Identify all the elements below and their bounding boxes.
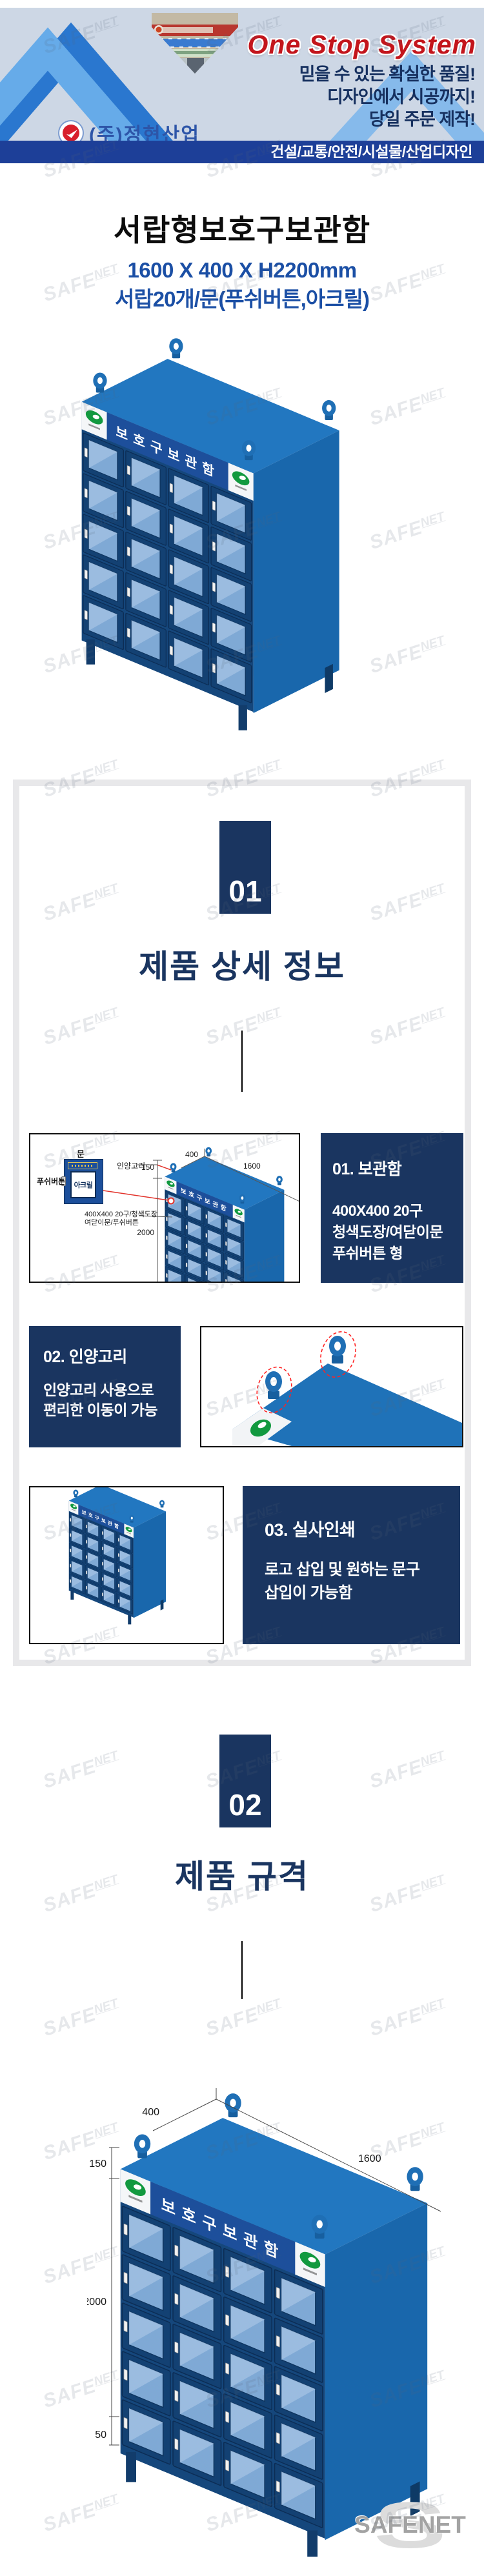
safenet-watermark: SAFENET <box>367 385 449 430</box>
divider-line <box>241 1031 243 1092</box>
card-line: 청색도장/여닫이문 <box>332 1222 443 1243</box>
spec-drawing: 400 1600 150 2000 50 <box>87 2031 449 2557</box>
dim-150-label: 150 <box>137 1163 154 1172</box>
card-line: 400X400 20구 <box>332 1200 443 1222</box>
card-line: 로고 삽입 및 원하는 문구 <box>265 1558 419 1582</box>
card-line: 푸쉬버튼 형 <box>332 1243 443 1264</box>
company-name: (주)정현산업 <box>89 119 200 141</box>
product-title: 서랍형보호구보관함 <box>0 205 484 250</box>
detail-diagram-box: 아크릴 문 푸쉬버튼 인양고리 150 2000 400 1600 400X40… <box>29 1133 300 1283</box>
door-illustration: 아크릴 <box>64 1159 103 1204</box>
drawer-note-line: 여닫이문/푸쉬버튼 <box>85 1219 139 1227</box>
company-emblem-icon <box>58 120 84 141</box>
card-body: 인양고리 사용으로 편리한 이동이 가능 <box>43 1380 157 1420</box>
product-image <box>65 333 368 745</box>
tagline: 믿을 수 있는 확실한 품질! <box>299 63 475 86</box>
banner-headline: One Stop System <box>248 30 476 60</box>
section1-title: 제품 상세 정보 <box>0 941 484 987</box>
door-sign <box>68 1162 97 1169</box>
card-title: 02. 인양고리 <box>43 1344 127 1367</box>
company-logo: (주)정현산업 <box>58 119 200 141</box>
section1-number: 01 <box>219 821 271 914</box>
dim-2000-label: 2000 <box>134 1228 154 1237</box>
header-banner: One Stop System 믿을 수 있는 확실한 품질! 디자인에서 시공… <box>0 8 484 141</box>
section2-number: 02 <box>219 1735 271 1827</box>
spec-dim-50: 50 <box>95 2430 106 2440</box>
card-line: 편리한 이동이 가능 <box>43 1400 157 1420</box>
tagline: 당일 주문 제작! <box>299 108 475 131</box>
info-card-1: 01. 보관함 400X400 20구 청색도장/여닫이문 푸쉬버튼 형 <box>321 1133 463 1283</box>
hooks-closeup-image <box>200 1326 463 1447</box>
storefront-photo <box>148 11 242 76</box>
product-page: 보호구보관함 <box>0 0 484 2576</box>
section2-title: 제품 규격 <box>0 1851 484 1897</box>
safenet-logo: S SAFENET <box>354 2491 467 2559</box>
spec-dim-150: 150 <box>89 2158 106 2169</box>
dim-400-label: 400 <box>185 1150 198 1159</box>
safenet-logo-text: SAFENET <box>354 2491 467 2559</box>
board-closeup-image <box>29 1486 224 1644</box>
spec-dim-1600: 1600 <box>358 2153 381 2164</box>
spec-dim-400: 400 <box>142 2107 159 2118</box>
lifting-hook-icon <box>265 1371 282 1399</box>
diagram-leader-lines <box>30 1134 299 1282</box>
drawer-note: 400X400 20구/청색도장 여닫이문/푸쉬버튼 <box>85 1211 139 1227</box>
push-button-label: 푸쉬버튼 <box>37 1176 65 1187</box>
product-spec: 서랍20개/문(푸쉬버튼,아크릴) <box>0 282 484 313</box>
tagline: 디자인에서 시공까지! <box>299 86 475 108</box>
product-size: 1600 X 400 X H2200mm <box>0 258 484 283</box>
info-card-3: 03. 실사인쇄 로고 삽입 및 원하는 문구 삽입이 가능함 <box>243 1486 460 1644</box>
card-body: 400X400 20구 청색도장/여닫이문 푸쉬버튼 형 <box>332 1200 443 1264</box>
door-acrylic-window: 아크릴 <box>70 1171 96 1198</box>
card-body: 로고 삽입 및 원하는 문구 삽입이 가능함 <box>265 1558 419 1605</box>
category-bar: 건설/교통/안전/시설물/산업디자인 <box>0 141 484 163</box>
card-line: 삽입이 가능함 <box>265 1582 419 1605</box>
drawer-note-line: 400X400 20구/청색도장 <box>85 1211 157 1218</box>
lifting-hook-icon <box>329 1336 346 1363</box>
safenet-watermark: SAFENET <box>367 633 449 678</box>
safenet-watermark: SAFENET <box>41 1748 123 1793</box>
dim-1600-label: 1600 <box>243 1162 261 1171</box>
spec-dim-2000: 2000 <box>87 2297 106 2308</box>
info-card-2: 02. 인양고리 인양고리 사용으로 편리한 이동이 가능 <box>29 1326 181 1447</box>
door-label: 문 <box>77 1147 85 1160</box>
safenet-watermark: SAFENET <box>367 1748 449 1793</box>
divider-line <box>241 1941 243 1999</box>
card-title: 03. 실사인쇄 <box>265 1516 355 1541</box>
card-line: 인양고리 사용으로 <box>43 1380 157 1400</box>
card-title: 01. 보관함 <box>332 1156 401 1180</box>
safenet-watermark: SAFENET <box>367 509 449 554</box>
banner-taglines: 믿을 수 있는 확실한 품질! 디자인에서 시공까지! 당일 주문 제작! <box>299 63 475 131</box>
